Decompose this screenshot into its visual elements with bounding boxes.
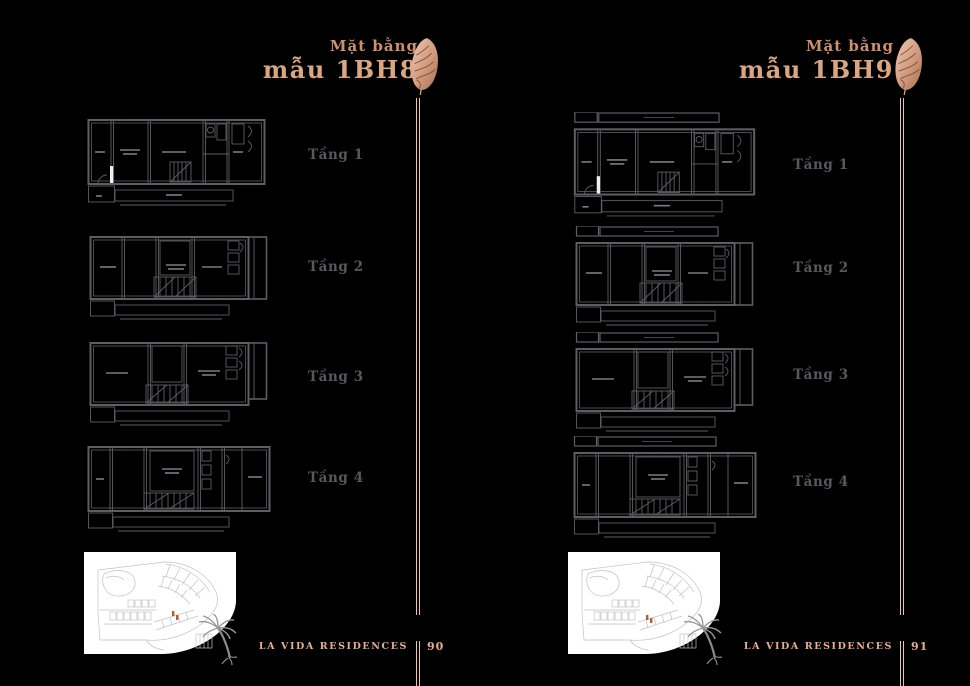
left-title-small: Mặt bằng: [188, 38, 418, 55]
right-title-large: mẫu 1BH9: [664, 57, 894, 83]
palm-tree-icon: [196, 614, 248, 666]
right-floor-label-1: Tầng 1: [793, 157, 849, 173]
right-vertical-divider-top: [900, 98, 904, 615]
floor-plan-right-tang1: [572, 112, 758, 220]
right-page-number: 91: [911, 640, 928, 653]
floor-plan-left-tang3: [88, 337, 270, 427]
left-footer-brand: LA VIDA RESIDENCES: [248, 641, 408, 652]
right-floor-label-2: Tầng 2: [793, 260, 849, 276]
palm-tree-icon: [681, 614, 733, 666]
left-vertical-divider-bottom: [416, 641, 420, 686]
left-title-large: mẫu 1BH8: [188, 57, 418, 83]
feather-icon: [891, 37, 927, 96]
floor-plan-right-tang4: [572, 436, 758, 539]
right-page-title: Mặt bằng mẫu 1BH9: [664, 38, 894, 83]
right-footer-brand: LA VIDA RESIDENCES: [733, 641, 893, 652]
left-floor-label-2: Tầng 2: [308, 259, 364, 275]
floor-plan-left-tang2: [88, 231, 270, 321]
floor-plan-right-tang2: [574, 226, 756, 327]
right-title-small: Mặt bằng: [664, 38, 894, 55]
left-vertical-divider-top: [416, 98, 420, 615]
left-page-number: 90: [427, 640, 444, 653]
floor-plan-left-tang4: [86, 441, 272, 533]
floor-plan-right-tang3: [574, 332, 756, 433]
floor-plan-left-tang1: [86, 114, 268, 209]
left-page-title: Mặt bằng mẫu 1BH8: [188, 38, 418, 83]
brochure-spread: Mặt bằng mẫu 1BH8 Tầng 1 Tầng 2 Tầng 3 T…: [0, 0, 970, 686]
right-floor-label-4: Tầng 4: [793, 474, 849, 490]
left-floor-label-1: Tầng 1: [308, 147, 364, 163]
feather-icon: [407, 37, 443, 96]
right-floor-label-3: Tầng 3: [793, 367, 849, 383]
right-vertical-divider-bottom: [900, 641, 904, 686]
left-floor-label-4: Tầng 4: [308, 470, 364, 486]
left-floor-label-3: Tầng 3: [308, 369, 364, 385]
